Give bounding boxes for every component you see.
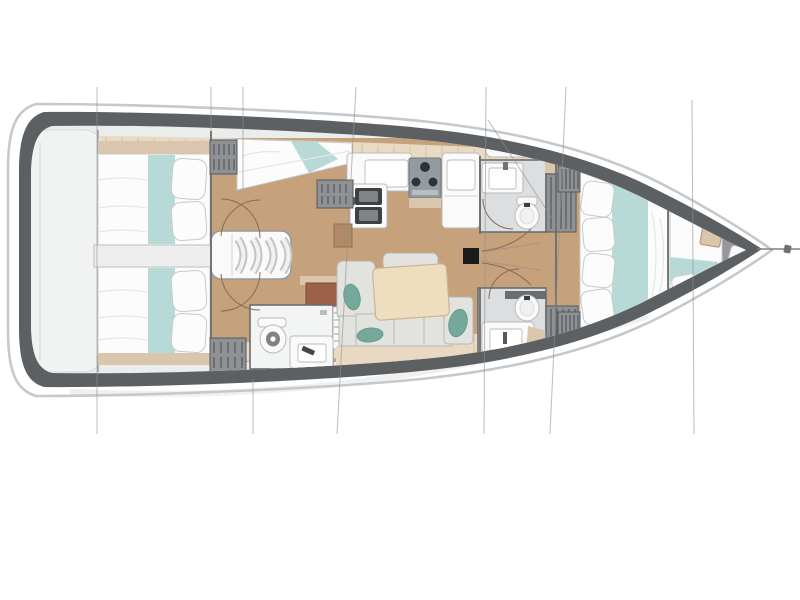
yacht-floor-plan xyxy=(0,0,800,600)
nav-seat xyxy=(334,224,352,247)
toilet-hinge xyxy=(524,203,530,207)
bed-runner xyxy=(148,155,175,244)
pillow xyxy=(171,158,208,200)
galley-sinks xyxy=(349,184,387,228)
faucet xyxy=(503,162,508,170)
faucet xyxy=(503,332,507,344)
aft-cabin-port xyxy=(98,141,210,245)
mast xyxy=(463,248,479,264)
galley-fridge-counter xyxy=(442,153,480,228)
stern-swim-platform xyxy=(24,130,104,372)
toilet-hinge xyxy=(524,296,530,300)
companionway-stairs xyxy=(211,231,291,279)
yacht-floor-plan-canvas xyxy=(0,0,800,600)
galley-stove xyxy=(409,158,441,208)
pillow xyxy=(580,180,615,218)
pillow xyxy=(171,201,208,241)
bow-fitting xyxy=(783,244,792,253)
toilet xyxy=(515,197,539,229)
headboard-shelf xyxy=(98,141,210,154)
stove-knobs xyxy=(412,190,438,195)
pillow xyxy=(582,217,616,253)
aft-cabin-starboard xyxy=(98,267,210,365)
stove-shelf xyxy=(409,198,441,208)
salon-table xyxy=(372,263,449,320)
headboard-shelf xyxy=(98,353,210,365)
pillow xyxy=(171,313,208,353)
toilet xyxy=(515,295,539,321)
head-sink xyxy=(290,336,333,368)
head-sink xyxy=(482,162,523,193)
aft-corridor xyxy=(94,245,213,267)
bowsprit-line xyxy=(757,244,800,253)
pillow xyxy=(171,270,208,312)
soap-dish xyxy=(320,310,327,315)
pillow xyxy=(581,253,615,289)
